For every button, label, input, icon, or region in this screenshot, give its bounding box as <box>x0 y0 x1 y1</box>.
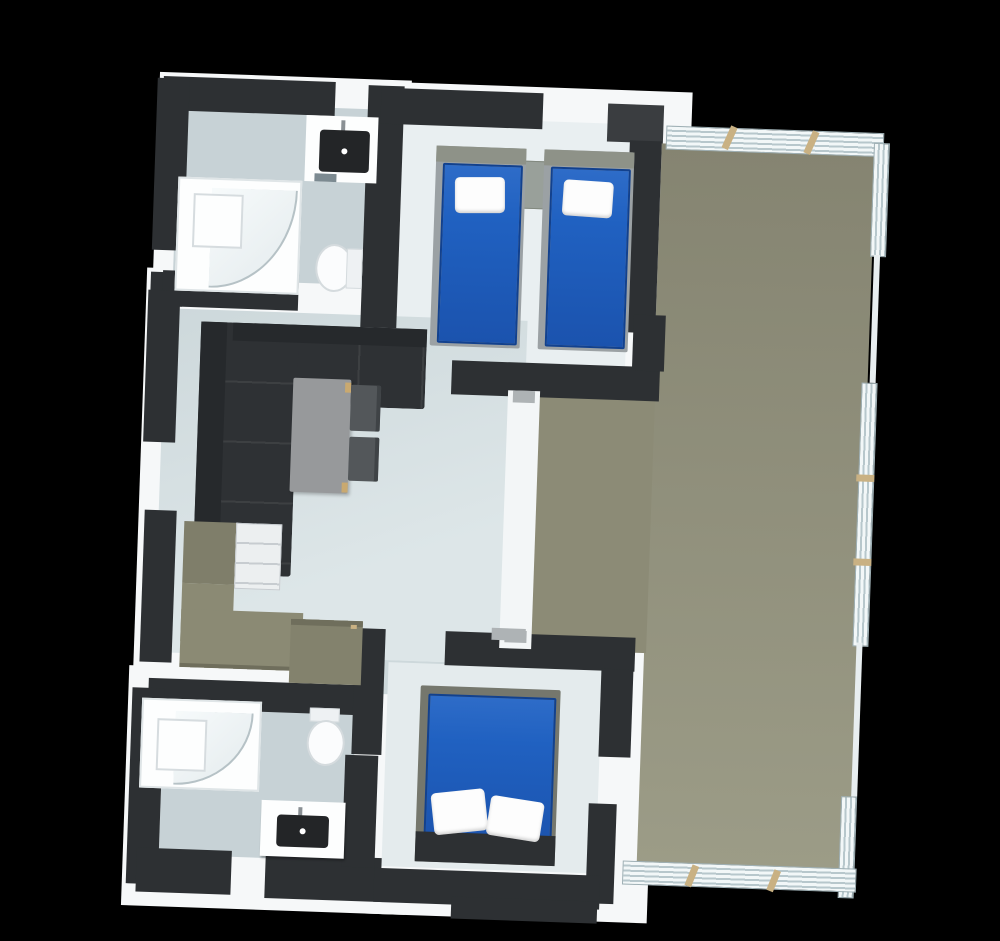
wall-segment <box>451 360 660 401</box>
wall-segment <box>143 290 180 443</box>
railing-post <box>856 474 874 482</box>
wall-segment <box>445 631 636 672</box>
terrace-floor-notch <box>529 393 655 653</box>
kitchen-counter-bottom <box>179 609 303 671</box>
railing-post <box>853 558 871 566</box>
wall-segment <box>139 510 176 663</box>
render-canvas <box>0 0 1000 941</box>
terrace-railing-right-upper <box>870 143 890 257</box>
wall-segment <box>607 104 664 144</box>
floorplan <box>122 58 880 903</box>
wall-segment <box>598 669 633 758</box>
wall-segment <box>135 848 231 895</box>
drain-dot <box>300 828 306 834</box>
wall-segment <box>451 897 598 924</box>
twin-bed-headboard <box>544 149 635 168</box>
sliding-door-handle <box>513 390 535 403</box>
wall-segment <box>380 88 543 130</box>
dining-chair <box>348 437 380 482</box>
wall-segment <box>632 315 666 372</box>
drain-dot <box>341 148 347 154</box>
dining-table <box>289 378 351 494</box>
table-corner-accent <box>341 482 347 492</box>
pillow <box>562 179 614 218</box>
door-handle <box>491 628 525 641</box>
shower-tray <box>192 193 244 249</box>
washbasin <box>276 814 329 848</box>
shower-tray <box>156 718 208 772</box>
dining-chair <box>350 385 382 432</box>
towel-rail <box>314 173 336 182</box>
washbasin <box>319 129 370 173</box>
kitchen-fridge-unit <box>234 523 282 591</box>
island-handle <box>351 625 357 629</box>
pillow <box>430 788 488 835</box>
wall-segment <box>341 755 378 868</box>
kitchen-tall-cabinet <box>182 521 238 585</box>
pillow <box>485 795 545 843</box>
pillow <box>455 177 505 213</box>
toilet-tank <box>346 248 363 289</box>
terrace-floor <box>637 143 876 874</box>
twin-bed-headboard <box>436 146 527 165</box>
